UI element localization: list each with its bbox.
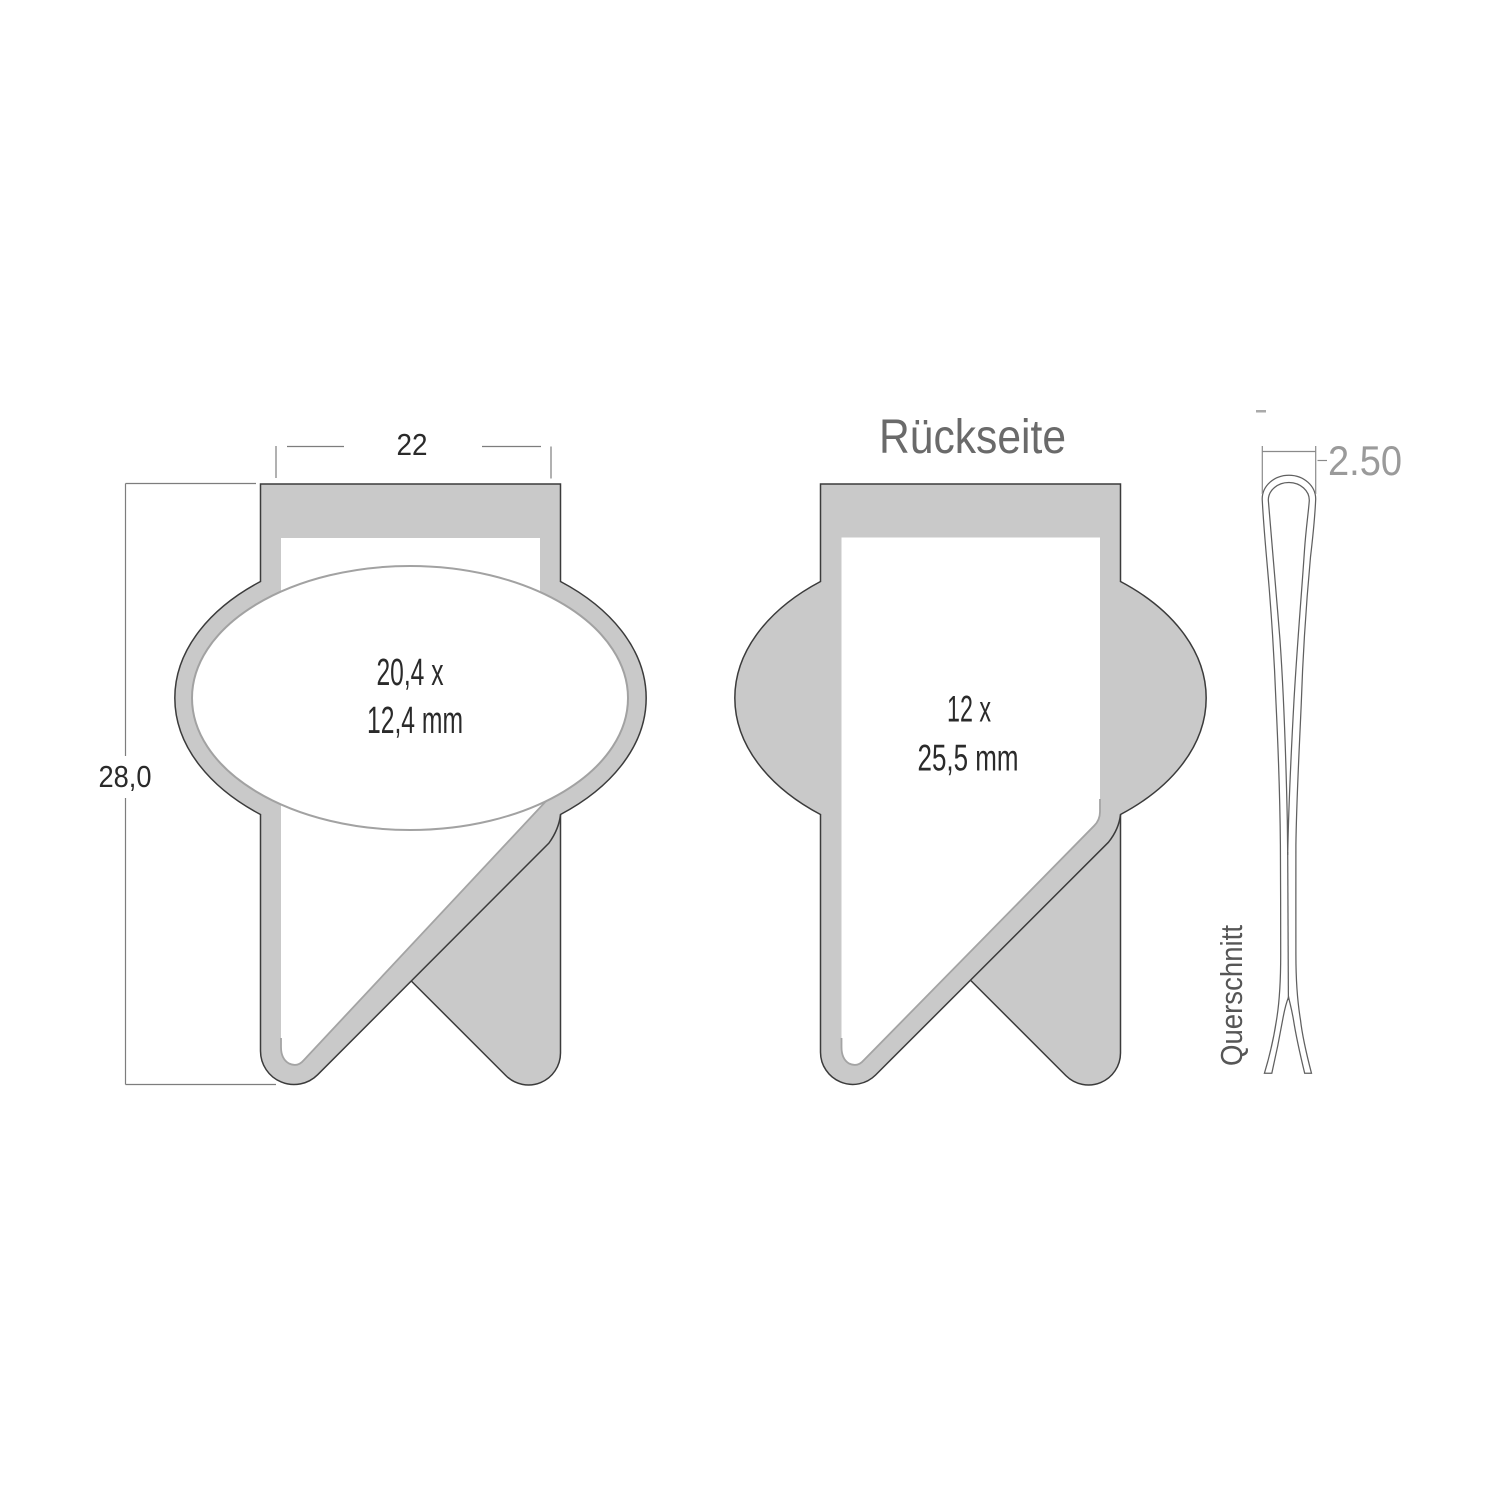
- svg-text:Rückseite: Rückseite: [879, 411, 1066, 464]
- svg-text:28,0: 28,0: [99, 759, 152, 794]
- svg-text:12,4 mm: 12,4 mm: [367, 700, 463, 742]
- svg-text:20,4 x: 20,4 x: [377, 652, 444, 694]
- svg-text:12 x: 12 x: [947, 689, 991, 730]
- svg-text:Querschnitt: Querschnitt: [1214, 925, 1249, 1066]
- svg-text:2.50: 2.50: [1328, 437, 1402, 484]
- svg-text:25,5 mm: 25,5 mm: [918, 738, 1019, 779]
- svg-text:22: 22: [397, 427, 428, 462]
